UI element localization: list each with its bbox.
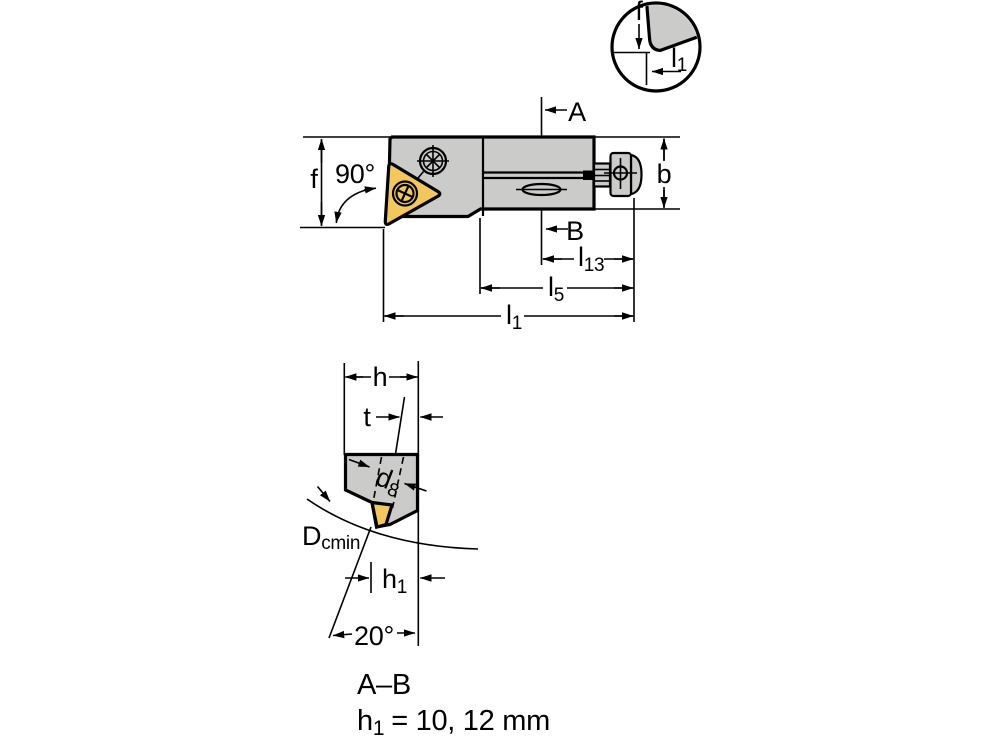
angle-90-label: 90° [335,159,375,189]
size-note: h1= 10, 12 mm [357,705,550,736]
dcmin-arrow [318,487,331,502]
f-label: f [310,164,318,194]
adjusting-screw [594,153,642,196]
detail-l1-label: l1 [671,43,687,76]
section-title: A–B [357,669,411,701]
main-view: f 90° A B b l13 l5 l1 [300,97,680,334]
detail-view: f l1 [612,0,706,91]
screw-dome [631,155,642,194]
tool-holder-drawing: f l1 [0,0,1000,736]
dcmin-label: Dcmin [302,521,360,554]
angle20-arrow-left [333,634,352,636]
section-a-label: A [568,97,586,127]
angle-arc [337,189,373,222]
b-label: b [657,159,672,189]
technical-drawing-canvas: f l1 [0,0,1000,736]
l1-label: l1 [506,300,522,334]
section-view: h t d8 Dcmin h1 20° A–B h1= 10, 12 mm [302,361,550,736]
detail-f-label: f [635,0,643,26]
slot-end-block [583,171,594,181]
insert-face-ext-line [396,397,405,454]
angle-arrow-down [336,212,338,223]
h1-label: h1 [382,564,407,598]
angle-20-label: 20° [354,621,394,651]
h-label: h [373,362,388,392]
l13-label: l13 [578,242,604,276]
t-label: t [363,402,371,432]
l5-label: l5 [548,272,564,306]
insert-screw [393,182,417,206]
